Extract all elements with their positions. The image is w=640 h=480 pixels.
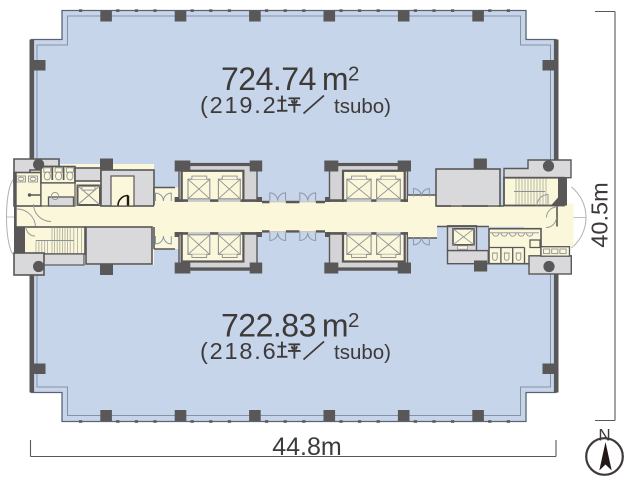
- svg-text:(218.6: (218.6: [200, 338, 277, 364]
- svg-text:40.5m: 40.5m: [587, 182, 613, 247]
- svg-text:tsubo): tsubo): [334, 95, 391, 118]
- svg-text:(219.2: (219.2: [200, 92, 277, 118]
- svg-text:N: N: [598, 426, 610, 445]
- svg-text:44.8m: 44.8m: [272, 433, 341, 461]
- svg-text:tsubo): tsubo): [334, 341, 391, 364]
